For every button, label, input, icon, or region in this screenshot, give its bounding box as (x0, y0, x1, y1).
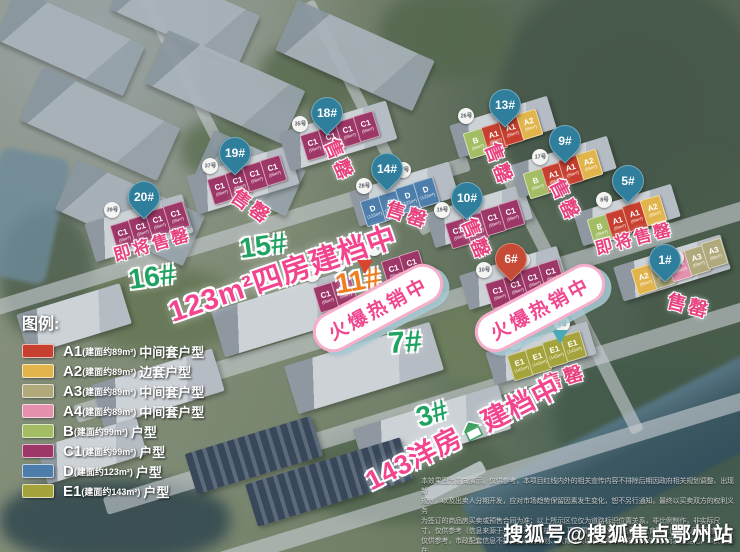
legend-unit-desc: 户型 (131, 422, 157, 441)
unit-number-circle: 19号 (434, 202, 450, 218)
disclaimer-line: 本效果图为意向演示，仅供参考，本项目红线内外的相关宣传内容不排除后期因政府相关规… (421, 477, 739, 497)
building-pin-label: 13# (490, 90, 520, 120)
legend-item-d: D(建面约123m²)户型 (22, 465, 204, 477)
building-number-7: 7# (387, 325, 423, 361)
unit-number-circle: 37号 (202, 158, 218, 174)
legend-item-e1: E1(建面约143m²)户型 (22, 485, 204, 497)
roof-strip-code: B (472, 136, 480, 145)
building-pin-label: 18# (312, 98, 342, 128)
unit-number-circle: 39号 (104, 202, 120, 218)
unit-number-label: 8号 (600, 197, 609, 202)
legend-unit-code: D (63, 463, 74, 480)
legend-swatch (22, 384, 54, 398)
legend-item-c1: C1(建面约99m²)户型 (22, 445, 204, 457)
legend-unit-area: (建面约89m²) (82, 405, 136, 418)
legend-swatch (22, 344, 54, 358)
building-pin-label: 9# (550, 126, 580, 156)
hot-badge-pointer (552, 330, 568, 344)
roof-strip-code: B (532, 176, 540, 185)
legend-unit-area: (建面约123m²) (74, 465, 133, 478)
building-pin-label: 14# (372, 154, 402, 184)
unit-number-circle: 17号 (532, 149, 548, 165)
unit-number-label: 10号 (478, 267, 490, 272)
roof-strip-code: D (369, 204, 377, 213)
building-pin-label: 5# (613, 166, 643, 196)
building-pin-label: 10# (452, 183, 482, 213)
legend-item-a4: A4(建面约89m²)中间套户型 (22, 405, 204, 417)
watermark: 搜狐号@搜狐焦点鄂州站 (503, 518, 734, 547)
roof-strip-code: D (421, 184, 429, 193)
legend-swatch (22, 444, 54, 458)
legend-unit-code: A4 (63, 403, 82, 420)
legend-swatch (22, 404, 54, 418)
roof-strip-code: B (596, 222, 604, 231)
unit-number-label: 35号 (294, 121, 306, 126)
legend: 图例: A1(建面约89m²)中间套户型A2(建面约89m²)边套户型A3(建面… (22, 310, 204, 505)
legend-unit-code: E1 (63, 483, 81, 500)
legend-unit-desc: 边套户型 (139, 362, 191, 381)
building-pin-label: 19# (220, 138, 250, 168)
legend-item-a3: A3(建面约89m²)中间套户型 (22, 385, 204, 397)
legend-unit-area: (建面约89m²) (82, 365, 136, 378)
legend-unit-area: (建面约89m²) (82, 385, 136, 398)
legend-swatch (22, 464, 54, 478)
legend-unit-desc: 中间套户型 (139, 342, 204, 361)
legend-swatch (22, 364, 54, 378)
building-pin-label: 1# (650, 245, 680, 275)
unit-number-label: 26号 (460, 113, 472, 118)
legend-item-b: B(建面约99m²)户型 (22, 425, 204, 437)
legend-unit-desc: 户型 (143, 482, 169, 501)
unit-number-label: 19号 (436, 207, 448, 212)
unit-number-circle: 35号 (292, 116, 308, 132)
unit-number-circle: 10号 (476, 262, 492, 278)
legend-swatch (22, 424, 54, 438)
legend-unit-area: (建面约89m²) (82, 345, 136, 358)
legend-unit-area: (建面约99m²) (82, 445, 136, 458)
site-plan-image: C1(99m²)C1(99m²)C1(99m²)C1(99m²)C1(99m²)… (0, 0, 740, 552)
legend-item-a2: A2(建面约89m²)边套户型 (22, 365, 204, 377)
legend-title: 图例: (22, 310, 204, 334)
legend-unit-desc: 中间套户型 (139, 402, 204, 421)
unit-number-label: 2号 (558, 321, 567, 326)
legend-unit-desc: 中间套户型 (139, 382, 204, 401)
unit-number-circle: 28号 (356, 178, 372, 194)
legend-unit-code: C1 (63, 443, 82, 460)
legend-unit-code: A2 (63, 363, 82, 380)
legend-unit-code: B (63, 423, 74, 440)
unit-number-label: 28号 (358, 183, 370, 188)
unit-number-circle: 8号 (596, 192, 612, 208)
legend-unit-code: A3 (63, 383, 82, 400)
roof-strip-code: E1 (566, 338, 578, 349)
unit-number-label: 39号 (106, 207, 118, 212)
roof-strip-code: E1 (531, 351, 543, 362)
legend-unit-area: (建面约143m²) (81, 485, 140, 498)
disclaimer-line: 规划，以及出卖人分期开发，应对市场趋势保留因素发生变化，恕不另行通知，最终以买卖… (421, 497, 739, 517)
legend-swatch (22, 484, 54, 498)
legend-unit-area: (建面约99m²) (74, 425, 128, 438)
unit-number-circle: 26号 (458, 108, 474, 124)
building-pin-label: 6# (496, 244, 526, 274)
unit-number-label: 17号 (534, 154, 546, 159)
hot-badge-pointer (357, 260, 373, 274)
legend-item-a1: A1(建面约89m²)中间套户型 (22, 345, 204, 357)
unit-number-label: 37号 (204, 163, 216, 168)
legend-unit-code: A1 (63, 343, 82, 360)
legend-unit-desc: 户型 (136, 462, 162, 481)
legend-unit-desc: 户型 (139, 442, 165, 461)
building-pin-label: 20# (129, 182, 159, 212)
